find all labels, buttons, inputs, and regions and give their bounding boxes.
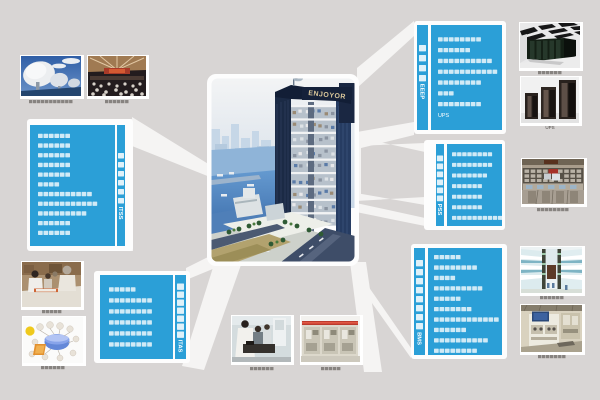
svg-text:BMS: BMS bbox=[416, 332, 422, 345]
svg-text:PSS: PSS bbox=[436, 204, 442, 216]
svg-text:UPS: UPS bbox=[438, 113, 449, 119]
svg-text:ITSS: ITSS bbox=[117, 207, 123, 220]
svg-text:ITAS: ITAS bbox=[177, 340, 183, 353]
svg-text:EEEP: EEEP bbox=[419, 84, 425, 100]
